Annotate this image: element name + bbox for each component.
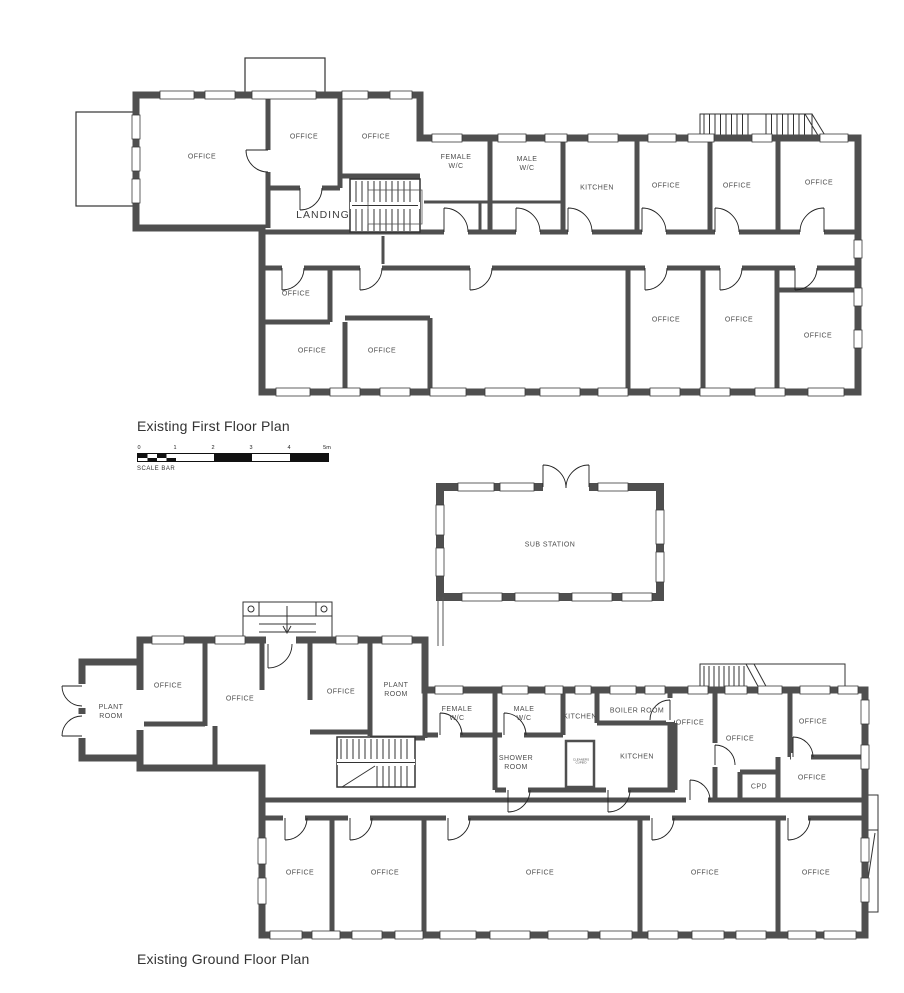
room-label-office: OFFICE (371, 868, 399, 877)
ff-outer-walls (136, 95, 858, 392)
room-label-boiler-room: BOILER ROOM (610, 706, 664, 715)
ff-roof-annex-left (76, 112, 134, 206)
scale-tick: 1 (173, 445, 176, 451)
room-label-office: OFFICE (526, 868, 554, 877)
room-label-office: OFFICE (799, 717, 827, 726)
room-label-kitchen: KITCHEN (620, 752, 654, 761)
scale-bar: 0 1 2 3 4 5m SCALE BAR (137, 445, 337, 472)
room-label-office: OFFICE (154, 681, 182, 690)
room-label-office: OFFICE (652, 181, 680, 190)
room-label-plant-room: PLANT ROOM (99, 703, 124, 721)
scale-tick: 0 (137, 445, 140, 451)
scale-bar-label: SCALE BAR (137, 466, 337, 472)
gf-entrance-steps-icon (243, 602, 332, 640)
floor-plan-drawing (0, 0, 904, 993)
ff-stair-icon (350, 179, 422, 232)
scale-tick: 4 (287, 445, 290, 451)
room-label-kitchen: KITCHEN (580, 183, 614, 192)
room-label-male-wc: MALE W/C (517, 155, 538, 173)
room-label-office: OFFICE (802, 868, 830, 877)
room-label-kitchen: KITCHEN (563, 712, 597, 721)
room-label-office: OFFICE (725, 315, 753, 324)
scale-bar-ticks: 0 1 2 3 4 5m (137, 445, 337, 453)
room-label-office: OFFICE (362, 132, 390, 141)
room-label-cpd: CPD (751, 782, 767, 791)
room-label-office: OFFICE (327, 687, 355, 696)
gf-stair-icon (337, 737, 415, 787)
room-label-office: OFFICE (290, 132, 318, 141)
room-label-office: OFFICE (188, 152, 216, 161)
first-floor-title: Existing First Floor Plan (137, 418, 290, 434)
scale-tick: 2 (211, 445, 214, 451)
ff-external-stair-icon (700, 114, 826, 137)
room-label-office: OFFICE (691, 868, 719, 877)
scale-tick: 3 (249, 445, 252, 451)
room-label-office: OFFICE (368, 346, 396, 355)
room-label-cleaners-cupboard: CLEANERS CUPB'D (573, 759, 589, 766)
room-label-office: OFFICE (726, 734, 754, 743)
sub-station-building (436, 465, 664, 646)
room-label-female-wc: FEMALE W/C (441, 153, 472, 171)
room-label-office: OFFICE (298, 346, 326, 355)
room-label-plant-room: PLANT ROOM (384, 681, 409, 699)
scale-bar-graphic (137, 453, 329, 462)
room-label-office: OFFICE (805, 178, 833, 187)
room-label-office: OFFICE (226, 694, 254, 703)
ground-floor-title: Existing Ground Floor Plan (137, 951, 310, 967)
room-label-office: OFFICE (676, 718, 704, 727)
room-label-office: OFFICE (723, 181, 751, 190)
room-label-office: OFFICE (282, 289, 310, 298)
scale-tick: 5m (323, 445, 331, 451)
room-label-shower-room: SHOWER ROOM (499, 754, 533, 772)
room-label-sub-station: SUB STATION (525, 540, 576, 549)
room-label-female-wc: FEMALE W/C (442, 705, 473, 723)
room-label-landing: LANDING (296, 209, 350, 223)
first-floor-plan (76, 58, 862, 396)
room-label-office: OFFICE (286, 868, 314, 877)
ground-floor-plan (62, 602, 878, 939)
room-label-male-wc: MALE W/C (514, 705, 535, 723)
floor-plan-sheet: { "first_floor": { "title": "Existing Fi… (0, 0, 904, 993)
room-label-office: OFFICE (798, 773, 826, 782)
room-label-office: OFFICE (804, 331, 832, 340)
ff-roof-annex-top (245, 58, 325, 94)
room-label-office: OFFICE (652, 315, 680, 324)
sub-station-connector (438, 597, 443, 646)
